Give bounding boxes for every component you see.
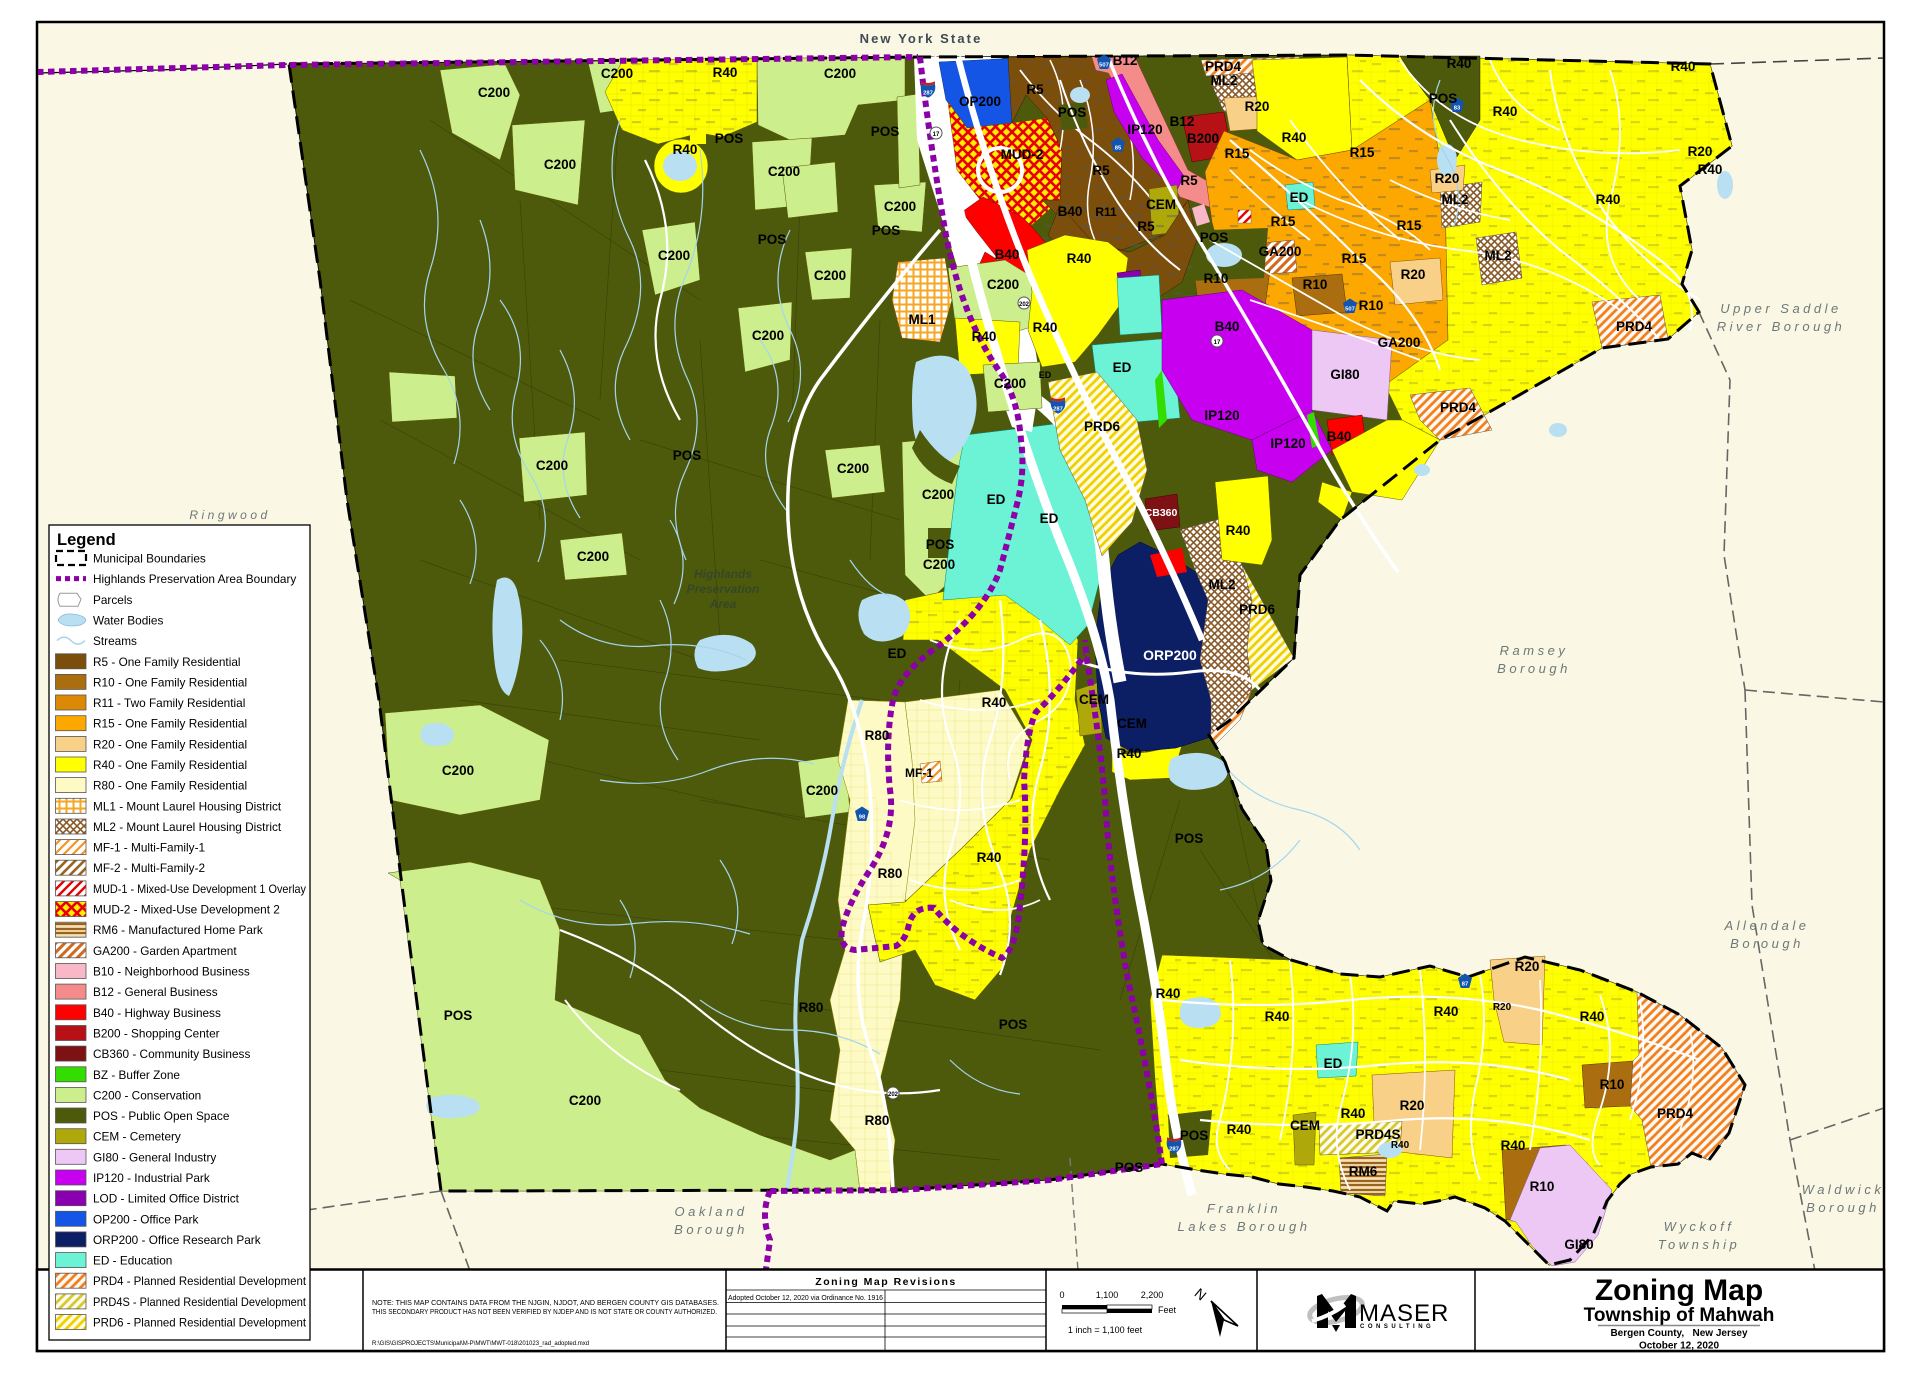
svg-text:R11: R11 (1095, 205, 1117, 219)
svg-text:R15: R15 (1342, 251, 1367, 266)
svg-text:287: 287 (1053, 407, 1063, 413)
svg-text:Township of Mahwah: Township of Mahwah (1584, 1305, 1775, 1326)
svg-text:Ringwood: Ringwood (189, 508, 270, 522)
svg-text:R10: R10 (1204, 271, 1229, 286)
svg-text:C200: C200 (569, 1093, 601, 1108)
svg-text:R20: R20 (1435, 171, 1460, 186)
svg-text:R5: R5 (1026, 82, 1044, 97)
svg-text:POS: POS (871, 124, 900, 139)
svg-text:R40: R40 (977, 850, 1002, 865)
svg-text:MF-2 - Multi-Family-2: MF-2 - Multi-Family-2 (93, 861, 205, 875)
svg-text:GI80 - General Industry: GI80 - General Industry (93, 1150, 216, 1164)
svg-text:ORP200 - Office Research Park: ORP200 - Office Research Park (93, 1233, 261, 1247)
svg-text:Feet: Feet (1158, 1305, 1177, 1315)
svg-text:17: 17 (933, 132, 940, 138)
svg-text:R40: R40 (1341, 1106, 1366, 1121)
svg-text:Township: Township (1658, 1237, 1740, 1252)
svg-text:Highlands Preservation Area Bo: Highlands Preservation Area Boundary (93, 572, 296, 586)
svg-text:R80: R80 (799, 1000, 824, 1015)
svg-text:202: 202 (1019, 302, 1030, 308)
svg-text:GI80: GI80 (1564, 1237, 1593, 1252)
svg-text:R40: R40 (972, 329, 997, 344)
svg-text:IP120 - Industrial Park: IP120 - Industrial Park (93, 1171, 210, 1185)
svg-text:ML2: ML2 (1209, 577, 1236, 592)
svg-text:Streams: Streams (93, 634, 137, 648)
svg-text:PRD4: PRD4 (1616, 319, 1653, 334)
svg-text:C200: C200 (922, 487, 954, 502)
svg-text:ED: ED (888, 646, 907, 661)
svg-text:R40: R40 (1227, 1122, 1252, 1137)
svg-text:Oakland: Oakland (675, 1204, 748, 1219)
svg-text:ML1: ML1 (909, 312, 936, 327)
svg-text:Preservation: Preservation (687, 582, 760, 596)
svg-text:PRD4: PRD4 (1205, 59, 1242, 74)
svg-text:POS: POS (999, 1017, 1028, 1032)
svg-text:PRD4: PRD4 (1657, 1106, 1694, 1121)
svg-text:B200 - Shopping Center: B200 - Shopping Center (93, 1027, 220, 1041)
svg-text:Area: Area (709, 597, 737, 611)
svg-text:Zoning Map Revisions: Zoning Map Revisions (815, 1276, 956, 1288)
svg-text:POS: POS (673, 448, 702, 463)
svg-text:C200: C200 (814, 268, 846, 283)
svg-text:POS - Public Open Space: POS - Public Open Space (93, 1109, 230, 1123)
svg-text:83: 83 (1454, 106, 1461, 112)
svg-text:PRD4 - Planned Residential Dev: PRD4 - Planned Residential Development (93, 1274, 307, 1288)
svg-text:R20: R20 (1515, 959, 1540, 974)
svg-text:POS: POS (1200, 230, 1229, 245)
svg-text:GI80: GI80 (1330, 367, 1359, 382)
svg-text:R11 - Two Family Residential: R11 - Two Family Residential (93, 696, 245, 710)
svg-text:ML2: ML2 (1211, 73, 1238, 88)
svg-text:BZ - Buffer Zone: BZ - Buffer Zone (93, 1068, 180, 1082)
svg-text:R20: R20 (1401, 267, 1426, 282)
svg-text:R10: R10 (1359, 298, 1384, 313)
svg-text:NOTE: THIS MAP CONTAINS DATA: NOTE: THIS MAP CONTAINS DATA FROM THE NJ… (372, 1298, 719, 1307)
svg-text:POS: POS (758, 232, 787, 247)
svg-text:C200: C200 (442, 763, 474, 778)
svg-text:Borough: Borough (1730, 936, 1804, 951)
svg-text:C200: C200 (987, 277, 1019, 292)
svg-text:CB360: CB360 (1145, 507, 1178, 519)
svg-text:R80: R80 (878, 866, 903, 881)
svg-text:B40: B40 (1058, 204, 1083, 219)
svg-text:Highlands: Highlands (694, 567, 752, 581)
svg-text:ML2 - Mount Laurel Housing Dis: ML2 - Mount Laurel Housing District (93, 820, 282, 834)
svg-text:R10 - One Family Residential: R10 - One Family Residential (93, 675, 247, 689)
svg-text:ED: ED (1039, 370, 1052, 380)
svg-text:MF-1: MF-1 (905, 766, 933, 780)
svg-text:R20 - One Family Residential: R20 - One Family Residential (93, 737, 247, 751)
svg-text:R40: R40 (1493, 104, 1518, 119)
svg-text:98: 98 (859, 815, 866, 821)
svg-text:R5 - One Family Residential: R5 - One Family Residential (93, 655, 241, 669)
svg-text:17: 17 (1214, 340, 1221, 346)
svg-text:R5: R5 (1092, 163, 1110, 178)
svg-text:ML1 - Mount Laurel Housing Dis: ML1 - Mount Laurel Housing District (93, 799, 282, 813)
svg-text:B12: B12 (1113, 53, 1138, 68)
svg-text:ML2: ML2 (1485, 248, 1512, 263)
svg-text:R80: R80 (865, 1113, 890, 1128)
svg-text:R80: R80 (865, 728, 890, 743)
svg-text:Wyckoff: Wyckoff (1664, 1219, 1735, 1234)
svg-text:R20: R20 (1245, 99, 1270, 114)
svg-text:Ramsey: Ramsey (1500, 643, 1569, 658)
svg-text:RM6 - Manufactured Home Park: RM6 - Manufactured Home Park (93, 923, 263, 937)
svg-text:R40: R40 (1282, 130, 1307, 145)
svg-text:R10: R10 (1303, 277, 1328, 292)
svg-text:87: 87 (1462, 982, 1468, 988)
svg-text:C200: C200 (806, 783, 838, 798)
svg-text:Borough: Borough (1806, 1200, 1880, 1215)
svg-text:287: 287 (1169, 1147, 1179, 1153)
svg-text:B40: B40 (1215, 319, 1240, 334)
svg-text:R20: R20 (1493, 1002, 1512, 1013)
svg-text:R80 - One Family Residential: R80 - One Family Residential (93, 779, 247, 793)
svg-text:Municipal Boundaries: Municipal Boundaries (93, 552, 206, 566)
svg-text:CB360 - Community Business: CB360 - Community Business (93, 1047, 250, 1061)
svg-text:1,100: 1,100 (1096, 1290, 1119, 1300)
svg-text:MUD-2 - Mixed-Use Development: MUD-2 - Mixed-Use Development 2 (93, 903, 280, 917)
svg-text:POS: POS (1180, 1128, 1209, 1143)
svg-text:R15: R15 (1350, 145, 1375, 160)
svg-text:C200: C200 (601, 66, 633, 81)
svg-text:CEM: CEM (1117, 716, 1147, 731)
svg-text:85: 85 (1115, 146, 1122, 152)
svg-text:PRD6: PRD6 (1239, 602, 1276, 617)
svg-text:R40: R40 (1391, 1140, 1410, 1151)
svg-text:OP200: OP200 (959, 94, 1001, 109)
svg-text:R40: R40 (1434, 1004, 1459, 1019)
svg-text:CEM: CEM (1146, 197, 1176, 212)
svg-text:Water Bodies: Water Bodies (93, 614, 163, 628)
svg-text:PRD4S - Planned Residential De: PRD4S - Planned Residential Development (93, 1295, 307, 1309)
svg-text:MF-1 - Multi-Family-1: MF-1 - Multi-Family-1 (93, 841, 205, 855)
svg-text:R40: R40 (1265, 1009, 1290, 1024)
svg-text:PRD6 - Planned Residential Dev: PRD6 - Planned Residential Development (93, 1316, 307, 1330)
svg-text:2,200: 2,200 (1141, 1290, 1164, 1300)
svg-text:C200: C200 (884, 199, 916, 214)
svg-text:R40: R40 (1698, 162, 1723, 177)
svg-text:POS: POS (926, 537, 955, 552)
svg-text:R:\GIS\GISPROJECTS\Municipal\M: R:\GIS\GISPROJECTS\Municipal\M-P\MWT\MWT… (372, 1341, 589, 1347)
svg-text:POS: POS (1058, 105, 1087, 120)
svg-text:Adopted October 12, 2020 via O: Adopted October 12, 2020 via Ordinance N… (728, 1293, 883, 1302)
svg-text:CEM - Cemetery: CEM - Cemetery (93, 1130, 181, 1144)
svg-text:287: 287 (923, 91, 933, 97)
svg-text:IP120: IP120 (1270, 436, 1305, 451)
svg-text:MUD-1 - Mixed-Use Development: MUD-1 - Mixed-Use Development 1 Overlay (93, 882, 306, 896)
svg-text:C200 - Conservation: C200 - Conservation (93, 1088, 201, 1102)
svg-text:R10: R10 (1600, 1077, 1625, 1092)
svg-text:R40: R40 (1067, 251, 1092, 266)
svg-text:ED - Education: ED - Education (93, 1254, 172, 1268)
svg-text:R15 - One Family Residential: R15 - One Family Residential (93, 717, 247, 731)
svg-text:R15: R15 (1397, 218, 1422, 233)
svg-text:R40: R40 (1596, 192, 1621, 207)
svg-text:PRD6: PRD6 (1084, 419, 1121, 434)
svg-text:R40: R40 (673, 142, 698, 157)
svg-text:ED: ED (987, 492, 1006, 507)
svg-text:ED: ED (1113, 360, 1132, 375)
svg-text:IP120: IP120 (1204, 408, 1239, 423)
svg-text:OP200 - Office Park: OP200 - Office Park (93, 1212, 198, 1226)
svg-text:R5: R5 (1180, 173, 1198, 188)
svg-text:CEM: CEM (1079, 692, 1109, 707)
svg-text:Bergen County, New Jersey: Bergen County, New Jersey (1610, 1328, 1748, 1339)
svg-text:Legend: Legend (57, 531, 116, 549)
svg-text:CONSULTING: CONSULTING (1360, 1324, 1434, 1330)
svg-text:Upper Saddle: Upper Saddle (1720, 301, 1842, 316)
svg-text:Parcels: Parcels (93, 593, 132, 607)
svg-text:ORP200: ORP200 (1143, 647, 1197, 663)
svg-text:R40: R40 (1447, 56, 1472, 71)
svg-text:POS: POS (1115, 1160, 1144, 1175)
svg-text:R40 - One Family Residential: R40 - One Family Residential (93, 758, 247, 772)
svg-text:LOD - Limited Office District: LOD - Limited Office District (93, 1192, 240, 1206)
svg-text:New York State: New York State (860, 31, 983, 46)
svg-text:R40: R40 (1117, 746, 1142, 761)
svg-text:ED: ED (1040, 511, 1059, 526)
svg-text:C200: C200 (837, 461, 869, 476)
svg-text:MUD-2: MUD-2 (1001, 147, 1044, 162)
svg-text:C200: C200 (824, 66, 856, 81)
svg-text:POS: POS (444, 1008, 473, 1023)
svg-text:Allendale: Allendale (1724, 918, 1810, 933)
svg-text:R40: R40 (713, 65, 738, 80)
svg-text:C200: C200 (994, 376, 1026, 391)
svg-text:B40: B40 (995, 247, 1020, 262)
svg-text:C200: C200 (923, 557, 955, 572)
svg-text:Borough: Borough (674, 1222, 748, 1237)
svg-text:B12: B12 (1170, 114, 1195, 129)
svg-text:R10: R10 (1530, 1179, 1555, 1194)
svg-text:R15: R15 (1225, 146, 1250, 161)
svg-text:C200: C200 (478, 85, 510, 100)
svg-text:B10 - Neighborhood Business: B10 - Neighborhood Business (93, 965, 250, 979)
svg-text:1 inch = 1,100 feet: 1 inch = 1,100 feet (1068, 1325, 1143, 1335)
svg-text:THIS SECONDARY PRODUCT HAS NOT: THIS SECONDARY PRODUCT HAS NOT BEEN VERI… (372, 1307, 717, 1316)
svg-text:GA200: GA200 (1259, 244, 1302, 259)
svg-text:PRD4: PRD4 (1440, 400, 1477, 415)
svg-text:R40: R40 (1671, 59, 1696, 74)
svg-text:POS: POS (715, 131, 744, 146)
svg-text:GA200 - Garden Apartment: GA200 - Garden Apartment (93, 944, 237, 958)
svg-text:Borough: Borough (1497, 661, 1571, 676)
svg-text:R40: R40 (1033, 320, 1058, 335)
svg-text:ED: ED (1324, 1056, 1343, 1071)
svg-text:POS: POS (872, 223, 901, 238)
svg-text:CEM: CEM (1290, 1118, 1320, 1133)
svg-text:R40: R40 (1156, 986, 1181, 1001)
svg-text:Franklin: Franklin (1207, 1201, 1281, 1216)
svg-text:RM6: RM6 (1349, 1164, 1378, 1179)
svg-text:507: 507 (1099, 63, 1109, 69)
svg-text:Waldwick: Waldwick (1802, 1182, 1885, 1197)
svg-text:R40: R40 (1580, 1009, 1605, 1024)
svg-text:IP120: IP120 (1127, 122, 1162, 137)
svg-text:R40: R40 (982, 695, 1007, 710)
svg-text:GA200: GA200 (1378, 335, 1421, 350)
svg-text:C200: C200 (577, 549, 609, 564)
svg-text:R40: R40 (1501, 1138, 1526, 1153)
svg-text:R15: R15 (1271, 214, 1296, 229)
svg-text:0: 0 (1059, 1290, 1064, 1300)
svg-text:Lakes Borough: Lakes Borough (1178, 1219, 1311, 1234)
svg-text:ED: ED (1290, 190, 1309, 205)
svg-text:R40: R40 (1226, 523, 1251, 538)
svg-text:B40: B40 (1327, 429, 1352, 444)
svg-text:ML2: ML2 (1442, 192, 1469, 207)
svg-text:Zoning Map: Zoning Map (1595, 1274, 1763, 1307)
svg-text:C200: C200 (544, 157, 576, 172)
svg-text:507: 507 (1345, 307, 1355, 313)
svg-text:C200: C200 (768, 164, 800, 179)
svg-text:C200: C200 (752, 328, 784, 343)
svg-text:October 12, 2020: October 12, 2020 (1639, 1341, 1719, 1352)
svg-text:B200: B200 (1187, 131, 1219, 146)
svg-text:C200: C200 (536, 458, 568, 473)
svg-text:R20: R20 (1400, 1098, 1425, 1113)
svg-text:R5: R5 (1137, 219, 1155, 234)
svg-text:R20: R20 (1688, 144, 1713, 159)
svg-text:POS: POS (1429, 91, 1458, 106)
svg-text:River Borough: River Borough (1717, 319, 1846, 334)
svg-text:B12 - General Business: B12 - General Business (93, 985, 218, 999)
svg-text:MASER: MASER (1359, 1300, 1449, 1327)
svg-text:B40 - Highway Business: B40 - Highway Business (93, 1006, 221, 1020)
svg-text:POS: POS (1175, 831, 1204, 846)
svg-text:C200: C200 (658, 248, 690, 263)
svg-text:202: 202 (888, 1092, 899, 1098)
